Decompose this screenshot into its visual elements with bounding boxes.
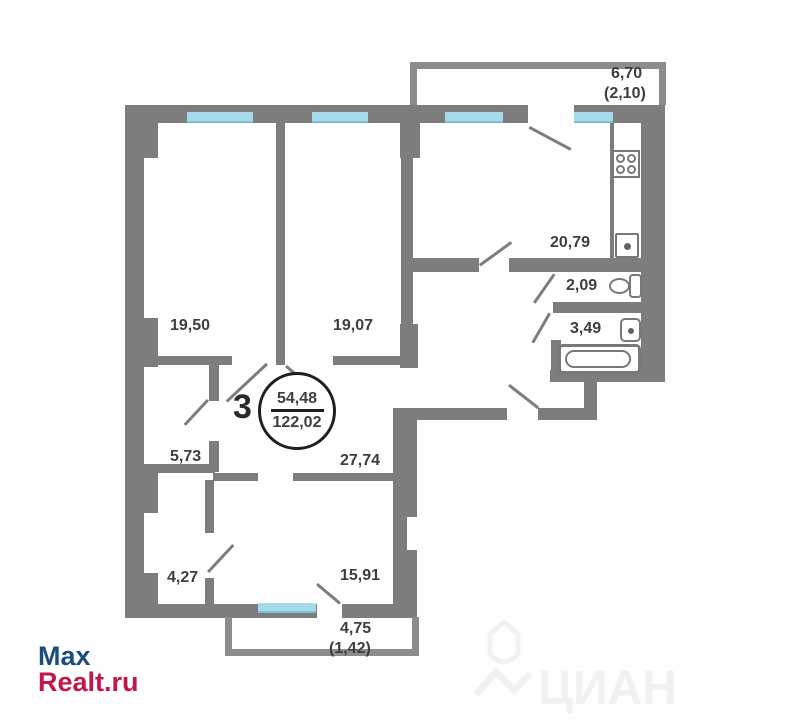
agency-logo-line1: Max xyxy=(38,644,139,670)
agency-logo: Max Realt.ru xyxy=(38,644,139,695)
room-area-label-pantry: 5,73 xyxy=(170,448,201,466)
pilaster xyxy=(144,105,158,158)
room-area-label-wardrobe: 4,27 xyxy=(167,569,198,587)
wall-wardrobe-right-b xyxy=(205,578,214,604)
wall-loggia-top-right xyxy=(659,62,666,105)
wall-pantry-right-a xyxy=(209,361,219,401)
window xyxy=(574,112,613,123)
pilaster xyxy=(144,472,158,513)
bath-sink-icon xyxy=(620,318,641,342)
door-bathroom xyxy=(531,313,551,344)
door-pantry xyxy=(184,399,209,426)
wall-wc-bottom xyxy=(553,302,641,313)
cian-watermark-icon: ЦИАН xyxy=(474,614,714,719)
room-area-label-bedroom-2: 19,07 xyxy=(333,317,373,335)
room-area-label-wc: 2,09 xyxy=(566,277,597,295)
floor-plan: 19,50 19,07 20,79 2,09 3,49 27,74 5,73 4… xyxy=(0,0,800,723)
bathtub-icon xyxy=(558,344,641,374)
wall-right-lower xyxy=(393,408,417,618)
wall-loggia-bottom-bottom xyxy=(225,649,419,656)
kitchen-counter-line xyxy=(610,123,614,258)
room-area-label-loggia-top-reduced: (2,10) xyxy=(604,85,646,103)
wall-bedrooms-bottom-b xyxy=(333,356,400,365)
room-area-label-hall: 27,74 xyxy=(340,452,380,470)
wall-notch xyxy=(407,517,417,550)
cian-watermark: ЦИАН xyxy=(474,614,714,723)
living-area-value: 54,48 xyxy=(277,390,317,408)
door-kitchen xyxy=(479,241,512,266)
window xyxy=(312,112,368,123)
agency-logo-line2: Realt.ru xyxy=(38,670,139,696)
room-area-label-loggia-bottom-reduced: (1,42) xyxy=(329,640,371,658)
total-area-value: 122,02 xyxy=(273,414,322,432)
wall-left xyxy=(125,105,144,618)
wall-right xyxy=(641,105,665,382)
room-area-label-bedroom-1: 19,50 xyxy=(170,317,210,335)
wall-kitchen-left xyxy=(401,118,413,368)
toilet-icon xyxy=(609,278,630,294)
cian-watermark-text: ЦИАН xyxy=(538,662,677,715)
toilet-tank-icon xyxy=(629,274,642,298)
room-area-label-kitchen: 20,79 xyxy=(550,234,590,252)
room-area-label-loggia-bottom: 4,75 xyxy=(340,620,371,638)
window xyxy=(187,112,253,123)
kitchen-sink-icon xyxy=(615,233,639,258)
unit-number: 3 xyxy=(233,388,252,427)
area-summary-circle: 54,48 122,02 xyxy=(258,372,336,450)
window xyxy=(258,603,316,613)
door-kitchen-loggia xyxy=(529,126,572,151)
stove-icon xyxy=(612,150,640,178)
wall-loggia-bottom-left xyxy=(225,617,232,653)
wall-bedroom-divider xyxy=(276,112,285,365)
wall-bedroom3-top-a xyxy=(213,473,258,481)
wall-loggia-bottom-right xyxy=(412,617,419,653)
door-wc xyxy=(533,273,556,303)
door-entrance xyxy=(508,384,539,409)
door-loggia-bottom xyxy=(316,583,341,605)
room-area-label-loggia-top: 6,70 xyxy=(611,65,642,83)
fraction-divider xyxy=(271,409,324,412)
wall-wardrobe-right-a xyxy=(205,480,214,533)
wall-entry xyxy=(538,408,597,420)
pilaster xyxy=(144,573,158,604)
wall-bedroom3-top-b xyxy=(293,473,395,481)
door-wardrobe xyxy=(207,544,234,573)
wall-kitchen-bottom-a xyxy=(413,258,479,272)
window xyxy=(445,112,503,123)
room-area-label-bathroom: 3,49 xyxy=(570,320,601,338)
wall-kitchen-bottom-b xyxy=(509,258,641,272)
room-area-label-bedroom-3: 15,91 xyxy=(340,567,380,585)
